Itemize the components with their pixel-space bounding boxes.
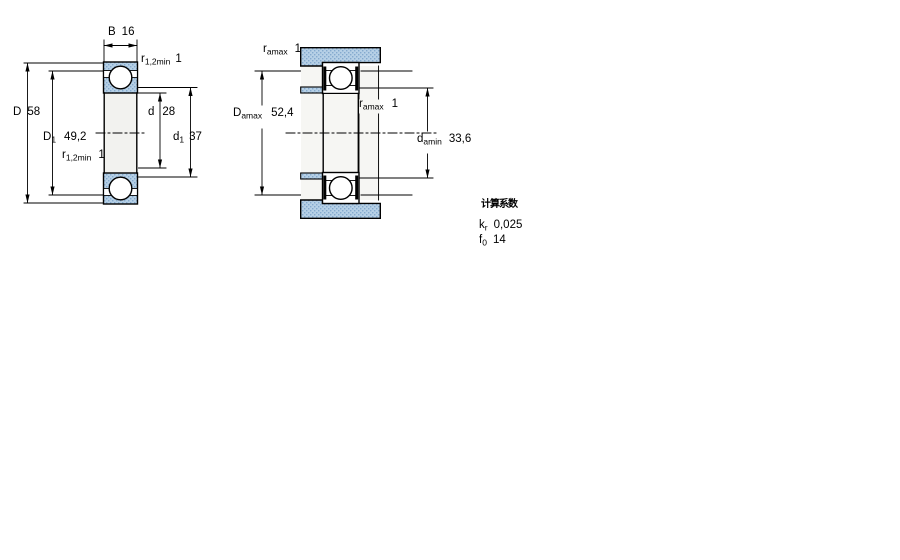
factor-subscript: 0 xyxy=(482,238,487,248)
calculation-factor-f0: f014 xyxy=(479,234,506,246)
factor-subscript: r xyxy=(485,223,488,233)
dim-symbol: D xyxy=(13,106,21,118)
dim-value: 33,6 xyxy=(449,133,471,145)
factor-value: 14 xyxy=(493,234,506,246)
dim-value: 58 xyxy=(27,106,40,118)
dim-value: 1 xyxy=(392,98,398,110)
dim-value: 1 xyxy=(295,43,301,55)
bearing-ball xyxy=(109,66,132,89)
bearing-drawing xyxy=(0,0,900,560)
dim-value: 37 xyxy=(189,131,202,143)
dim-subscript: 1 xyxy=(51,135,56,145)
dim-value: 1 xyxy=(98,149,104,161)
dim-label-d1: d137 xyxy=(173,131,202,144)
dim-label-D: D58 xyxy=(13,106,40,119)
dim-value: 28 xyxy=(162,106,175,118)
dim-subscript: amin xyxy=(423,137,441,147)
dim-subscript: 1,2min xyxy=(145,57,171,67)
dim-label-Damax: Damax52,4 xyxy=(233,107,294,120)
shaft-section-bottom xyxy=(301,173,323,179)
bearing-ball xyxy=(330,177,353,200)
dim-subscript: 1,2min xyxy=(66,153,92,163)
dim-value: 16 xyxy=(122,26,135,38)
calculation-factor-kr: kr0,025 xyxy=(479,219,522,231)
bearing-ball xyxy=(109,177,132,200)
dim-label-ra-mid: ramax1 xyxy=(359,98,398,111)
dim-value: 49,2 xyxy=(64,131,86,143)
dim-symbol: d xyxy=(148,106,154,118)
dim-label-r12-bottom: r1,2min1 xyxy=(62,149,105,162)
dim-value: 52,4 xyxy=(271,107,293,119)
dim-subscript: amax xyxy=(267,47,288,57)
dim-value: 1 xyxy=(175,53,181,65)
dim-subscript: amax xyxy=(363,102,384,112)
dim-subscript: 1 xyxy=(179,135,184,145)
dim-symbol: B xyxy=(108,26,116,38)
dim-label-damin: damin33,6 xyxy=(417,133,471,146)
dim-label-d: d28 xyxy=(148,106,175,119)
dim-label-B: B16 xyxy=(108,26,134,39)
dim-label-r12-top: r1,2min1 xyxy=(141,53,182,66)
shaft-section-top xyxy=(301,87,323,93)
dim-label-D1: D149,2 xyxy=(43,131,86,144)
calculation-factors-title: 计算系数 xyxy=(481,195,517,210)
right-figure xyxy=(255,48,438,219)
factor-value: 0,025 xyxy=(494,219,523,231)
bearing-datasheet-figure: B16 r1,2min1 D58 D149,2 r1,2min1 d28 d13… xyxy=(0,0,900,560)
dim-label-ra-top: ramax1 xyxy=(263,43,301,56)
dim-subscript: amax xyxy=(241,111,262,121)
bearing-ball xyxy=(330,67,353,90)
